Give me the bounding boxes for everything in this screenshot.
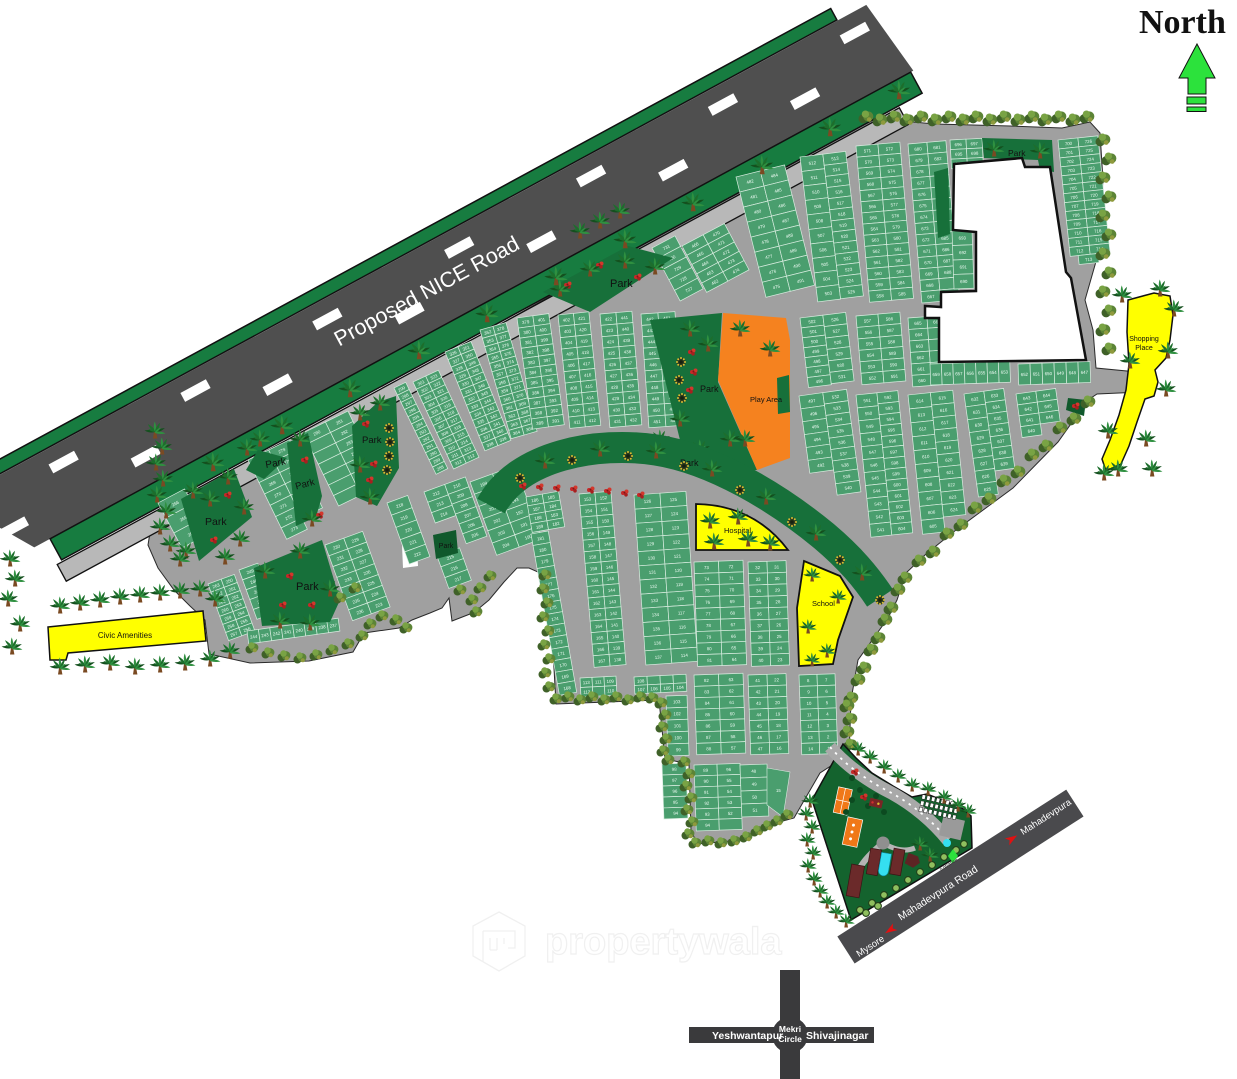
svg-text:705: 705 — [1069, 185, 1077, 191]
svg-text:581: 581 — [894, 246, 902, 252]
svg-text:148: 148 — [604, 541, 612, 547]
svg-text:612: 612 — [919, 426, 927, 432]
svg-text:431: 431 — [614, 419, 622, 425]
svg-text:585: 585 — [898, 291, 906, 297]
svg-text:663: 663 — [916, 343, 924, 349]
svg-text:52: 52 — [728, 811, 734, 816]
svg-text:570: 570 — [865, 159, 873, 165]
svg-text:609: 609 — [923, 468, 931, 474]
svg-text:624: 624 — [950, 507, 958, 513]
svg-text:145: 145 — [607, 576, 615, 582]
svg-text:523: 523 — [845, 267, 853, 273]
svg-text:529: 529 — [835, 351, 843, 357]
svg-text:152: 152 — [600, 495, 608, 501]
svg-text:89: 89 — [703, 768, 709, 773]
svg-text:127: 127 — [645, 513, 653, 519]
svg-text:146: 146 — [606, 564, 614, 570]
svg-text:607: 607 — [926, 496, 934, 502]
svg-text:414: 414 — [586, 395, 594, 401]
svg-text:94: 94 — [673, 811, 679, 816]
svg-text:446: 446 — [649, 362, 657, 368]
svg-text:613: 613 — [917, 412, 925, 418]
svg-text:520: 520 — [841, 233, 849, 239]
svg-text:139: 139 — [613, 645, 621, 651]
svg-text:673: 673 — [921, 226, 929, 232]
svg-text:674: 674 — [920, 214, 928, 220]
svg-text:704: 704 — [1068, 177, 1076, 183]
svg-text:600: 600 — [893, 482, 901, 488]
svg-text:396: 396 — [545, 367, 554, 373]
svg-text:573: 573 — [886, 157, 894, 163]
svg-text:151: 151 — [601, 507, 609, 513]
svg-text:653: 653 — [1001, 369, 1009, 374]
svg-text:160: 160 — [591, 577, 599, 583]
svg-text:657: 657 — [955, 371, 963, 376]
svg-text:51: 51 — [753, 808, 759, 813]
svg-text:425: 425 — [608, 350, 616, 356]
svg-text:420: 420 — [579, 327, 587, 333]
svg-text:405: 405 — [566, 351, 574, 357]
svg-text:676: 676 — [918, 192, 926, 198]
svg-text:Shivajinagar: Shivajinagar — [806, 1030, 868, 1042]
svg-text:655: 655 — [978, 370, 986, 375]
svg-text:63: 63 — [728, 677, 734, 682]
svg-text:450: 450 — [652, 407, 660, 413]
svg-text:695: 695 — [955, 151, 963, 156]
svg-text:621: 621 — [946, 469, 954, 475]
svg-text:77: 77 — [705, 611, 711, 616]
svg-text:33: 33 — [756, 577, 762, 582]
svg-text:596: 596 — [889, 438, 897, 444]
svg-text:615: 615 — [938, 395, 946, 401]
svg-text:702: 702 — [1066, 159, 1074, 165]
svg-text:408: 408 — [570, 385, 578, 391]
svg-text:701: 701 — [1065, 150, 1073, 156]
svg-text:164: 164 — [595, 624, 603, 630]
svg-text:72: 72 — [728, 564, 734, 569]
svg-text:530: 530 — [837, 362, 845, 368]
svg-text:512: 512 — [808, 160, 816, 166]
svg-text:90: 90 — [704, 779, 710, 784]
svg-text:541: 541 — [877, 527, 885, 533]
svg-text:157: 157 — [588, 543, 596, 549]
svg-text:500: 500 — [811, 339, 819, 345]
svg-text:404: 404 — [565, 340, 573, 346]
svg-text:38: 38 — [758, 635, 764, 640]
svg-text:113: 113 — [583, 680, 591, 685]
svg-text:54: 54 — [727, 789, 733, 794]
svg-text:Mekri: Mekri — [779, 1024, 801, 1034]
svg-text:605: 605 — [929, 523, 937, 529]
svg-text:35: 35 — [756, 600, 762, 605]
svg-text:510: 510 — [812, 189, 820, 195]
svg-text:659: 659 — [932, 372, 940, 377]
svg-text:564: 564 — [870, 226, 878, 232]
svg-text:582: 582 — [895, 258, 903, 264]
svg-text:Shopping: Shopping — [1129, 336, 1159, 343]
svg-text:50: 50 — [752, 795, 758, 800]
svg-text:592: 592 — [884, 394, 892, 400]
svg-text:652: 652 — [1021, 372, 1029, 377]
svg-text:678: 678 — [916, 169, 924, 175]
svg-text:100: 100 — [674, 735, 682, 740]
svg-text:721: 721 — [1089, 183, 1097, 189]
svg-text:Yeshwantapur: Yeshwantapur — [712, 1030, 783, 1042]
svg-text:437: 437 — [625, 360, 633, 366]
svg-text:527: 527 — [832, 328, 840, 334]
svg-text:122: 122 — [673, 539, 681, 545]
svg-text:150: 150 — [602, 518, 610, 524]
svg-text:163: 163 — [594, 612, 602, 618]
svg-text:531: 531 — [838, 374, 846, 380]
svg-text:12: 12 — [807, 724, 813, 729]
svg-text:528: 528 — [834, 339, 842, 345]
svg-text:515: 515 — [834, 178, 842, 184]
svg-text:508: 508 — [816, 218, 824, 224]
svg-text:681: 681 — [933, 145, 941, 151]
svg-text:444: 444 — [648, 339, 656, 345]
svg-text:708: 708 — [1072, 212, 1080, 218]
svg-text:586: 586 — [886, 316, 894, 322]
svg-text:98: 98 — [672, 767, 678, 772]
svg-text:614: 614 — [916, 398, 924, 404]
svg-text:403: 403 — [564, 328, 572, 334]
svg-text:504: 504 — [823, 276, 831, 282]
svg-text:577: 577 — [890, 202, 898, 208]
svg-text:86: 86 — [705, 723, 711, 728]
svg-text:103: 103 — [673, 699, 681, 704]
svg-text:664: 664 — [915, 332, 923, 338]
svg-text:623: 623 — [949, 494, 957, 500]
svg-text:91: 91 — [704, 790, 710, 795]
svg-text:162: 162 — [593, 600, 601, 606]
svg-text:53: 53 — [727, 800, 733, 805]
svg-text:Park: Park — [610, 278, 633, 290]
svg-text:118: 118 — [677, 596, 685, 602]
svg-text:667: 667 — [927, 294, 935, 300]
svg-text:505: 505 — [821, 261, 829, 267]
svg-text:619: 619 — [944, 445, 952, 451]
svg-text:415: 415 — [585, 384, 593, 390]
svg-text:114: 114 — [681, 653, 689, 659]
svg-text:123: 123 — [672, 525, 680, 531]
svg-text:416: 416 — [584, 372, 592, 378]
svg-text:Park: Park — [700, 384, 719, 394]
svg-text:427: 427 — [610, 373, 618, 379]
svg-text:616: 616 — [940, 407, 948, 413]
svg-text:111: 111 — [595, 679, 602, 684]
svg-text:682: 682 — [934, 156, 942, 162]
svg-text:81: 81 — [707, 658, 713, 663]
svg-text:102: 102 — [673, 711, 681, 716]
svg-text:518: 518 — [838, 211, 846, 217]
svg-text:412: 412 — [589, 418, 597, 424]
svg-text:506: 506 — [819, 247, 827, 253]
svg-text:608: 608 — [925, 482, 933, 488]
svg-text:117: 117 — [678, 610, 686, 616]
svg-text:561: 561 — [873, 260, 881, 266]
svg-text:41: 41 — [755, 678, 761, 683]
svg-text:159: 159 — [590, 566, 598, 572]
svg-text:80: 80 — [707, 646, 713, 651]
svg-text:24: 24 — [777, 646, 783, 651]
svg-text:Circle: Circle — [778, 1034, 802, 1044]
svg-text:82: 82 — [704, 678, 710, 683]
svg-text:588: 588 — [888, 339, 896, 345]
svg-text:553: 553 — [868, 364, 876, 370]
svg-text:598: 598 — [891, 460, 899, 466]
svg-text:92: 92 — [704, 801, 710, 806]
svg-text:435: 435 — [627, 383, 635, 389]
svg-text:552: 552 — [869, 375, 877, 381]
svg-text:661: 661 — [917, 366, 925, 372]
svg-text:447: 447 — [650, 373, 658, 379]
svg-text:650: 650 — [1045, 371, 1053, 376]
svg-text:147: 147 — [605, 553, 613, 559]
svg-text:55: 55 — [727, 778, 733, 783]
svg-text:57: 57 — [731, 745, 737, 750]
svg-text:651: 651 — [1033, 371, 1041, 376]
svg-text:713: 713 — [1085, 257, 1093, 263]
svg-text:421: 421 — [578, 316, 586, 322]
svg-text:165: 165 — [596, 635, 604, 641]
svg-text:62: 62 — [729, 688, 735, 693]
svg-text:440: 440 — [622, 326, 630, 332]
svg-text:525: 525 — [847, 289, 855, 295]
svg-text:524: 524 — [846, 278, 854, 284]
svg-text:School: School — [812, 599, 835, 608]
svg-text:384: 384 — [529, 370, 538, 376]
svg-text:597: 597 — [890, 449, 898, 455]
svg-text:391: 391 — [552, 418, 561, 424]
svg-text:418: 418 — [581, 350, 589, 356]
svg-text:601: 601 — [894, 493, 902, 499]
svg-text:725: 725 — [1085, 148, 1093, 154]
svg-text:670: 670 — [924, 260, 932, 266]
svg-text:108: 108 — [637, 678, 645, 683]
svg-text:23: 23 — [777, 657, 783, 662]
svg-text:22: 22 — [774, 677, 780, 682]
svg-text:451: 451 — [653, 419, 661, 425]
svg-text:719: 719 — [1091, 201, 1099, 207]
svg-text:17: 17 — [776, 734, 782, 739]
svg-text:517: 517 — [836, 200, 844, 206]
svg-text:417: 417 — [583, 361, 591, 367]
svg-text:10: 10 — [806, 701, 812, 706]
svg-text:509: 509 — [814, 204, 822, 210]
svg-text:29: 29 — [775, 588, 781, 593]
svg-text:95: 95 — [673, 800, 679, 805]
svg-text:143: 143 — [609, 599, 617, 605]
svg-text:589: 589 — [889, 351, 897, 357]
svg-text:665: 665 — [914, 320, 922, 326]
svg-text:542: 542 — [875, 514, 883, 520]
svg-text:69: 69 — [730, 599, 736, 604]
svg-text:595: 595 — [887, 427, 895, 433]
svg-text:501: 501 — [809, 329, 817, 335]
svg-text:11: 11 — [807, 712, 812, 717]
svg-text:104: 104 — [676, 685, 684, 690]
svg-text:379: 379 — [522, 319, 531, 325]
svg-text:34: 34 — [756, 588, 762, 593]
svg-text:76: 76 — [705, 600, 711, 605]
svg-text:132: 132 — [650, 584, 658, 590]
svg-text:575: 575 — [888, 180, 896, 186]
svg-text:410: 410 — [572, 408, 580, 414]
svg-text:726: 726 — [1084, 139, 1092, 145]
svg-text:514: 514 — [832, 167, 840, 173]
svg-text:550: 550 — [865, 411, 873, 417]
svg-text:136: 136 — [654, 640, 662, 646]
svg-text:679: 679 — [915, 158, 923, 164]
svg-text:680: 680 — [914, 146, 922, 152]
svg-text:59: 59 — [730, 723, 736, 728]
svg-text:37: 37 — [757, 623, 763, 628]
svg-text:593: 593 — [885, 405, 893, 411]
svg-text:20: 20 — [775, 700, 781, 705]
svg-text:710: 710 — [1074, 230, 1082, 236]
svg-text:46: 46 — [757, 735, 763, 740]
svg-text:580: 580 — [893, 235, 901, 241]
svg-text:649: 649 — [1057, 371, 1065, 376]
svg-text:138: 138 — [614, 657, 622, 663]
svg-text:432: 432 — [629, 417, 637, 423]
svg-text:44: 44 — [756, 712, 762, 717]
svg-text:617: 617 — [941, 420, 949, 426]
svg-text:158: 158 — [589, 554, 597, 560]
svg-text:402: 402 — [562, 317, 570, 323]
svg-text:141: 141 — [611, 622, 619, 628]
svg-text:590: 590 — [890, 362, 898, 368]
svg-text:32: 32 — [755, 565, 761, 570]
svg-text:85: 85 — [705, 712, 711, 717]
svg-text:576: 576 — [889, 191, 897, 197]
svg-text:78: 78 — [706, 623, 712, 628]
svg-text:99: 99 — [676, 747, 682, 752]
svg-text:672: 672 — [922, 237, 930, 243]
svg-text:Park: Park — [439, 543, 454, 550]
svg-text:571: 571 — [864, 148, 872, 154]
svg-text:569: 569 — [866, 170, 874, 176]
svg-text:697: 697 — [970, 141, 978, 146]
svg-text:611: 611 — [921, 440, 929, 446]
svg-text:428: 428 — [611, 384, 619, 390]
svg-text:445: 445 — [648, 351, 656, 357]
svg-text:563: 563 — [871, 237, 879, 243]
svg-text:167: 167 — [598, 658, 606, 664]
svg-text:Park: Park — [362, 435, 382, 446]
svg-text:125: 125 — [670, 497, 678, 503]
svg-text:64: 64 — [732, 657, 738, 662]
svg-text:166: 166 — [597, 647, 605, 653]
svg-text:94: 94 — [705, 823, 711, 828]
svg-text:19: 19 — [775, 711, 781, 716]
svg-text:572: 572 — [886, 146, 894, 152]
svg-text:583: 583 — [896, 269, 904, 275]
svg-text:692: 692 — [959, 250, 967, 255]
svg-text:559: 559 — [875, 282, 883, 288]
svg-text:25: 25 — [777, 634, 783, 639]
svg-text:71: 71 — [729, 576, 735, 581]
svg-text:27: 27 — [776, 611, 782, 616]
svg-text:690: 690 — [960, 279, 968, 284]
svg-text:134: 134 — [652, 612, 660, 618]
svg-text:567: 567 — [868, 193, 876, 199]
svg-text:96: 96 — [726, 767, 732, 772]
svg-text:407: 407 — [568, 374, 576, 380]
svg-text:438: 438 — [624, 349, 632, 355]
svg-text:Park: Park — [296, 581, 319, 593]
svg-text:544: 544 — [873, 488, 881, 494]
svg-text:149: 149 — [603, 530, 611, 536]
svg-text:131: 131 — [649, 569, 657, 575]
svg-text:106: 106 — [650, 686, 658, 691]
svg-text:137: 137 — [655, 654, 663, 660]
svg-text:647: 647 — [1081, 370, 1089, 375]
svg-text:707: 707 — [1071, 203, 1079, 209]
svg-text:79: 79 — [706, 635, 712, 640]
svg-text:560: 560 — [874, 271, 882, 277]
svg-text:30: 30 — [775, 576, 781, 581]
svg-text:413: 413 — [587, 406, 595, 412]
svg-text:18: 18 — [776, 723, 782, 728]
svg-text:548: 548 — [867, 436, 875, 442]
svg-text:519: 519 — [839, 222, 847, 228]
svg-text:126: 126 — [644, 499, 652, 505]
svg-text:696: 696 — [954, 142, 962, 147]
svg-text:84: 84 — [705, 701, 711, 706]
svg-text:107: 107 — [637, 687, 645, 692]
svg-text:36: 36 — [757, 611, 763, 616]
svg-text:671: 671 — [923, 248, 931, 254]
svg-text:557: 557 — [864, 318, 872, 324]
svg-text:499: 499 — [812, 349, 820, 355]
svg-text:21: 21 — [775, 689, 781, 694]
svg-text:620: 620 — [945, 457, 953, 463]
svg-text:555: 555 — [866, 341, 874, 347]
svg-text:115: 115 — [680, 638, 688, 644]
svg-text:433: 433 — [629, 406, 637, 412]
svg-text:133: 133 — [651, 598, 659, 604]
svg-text:587: 587 — [887, 328, 895, 334]
svg-text:498: 498 — [813, 358, 821, 364]
svg-text:409: 409 — [571, 396, 579, 402]
svg-text:521: 521 — [842, 244, 850, 250]
svg-text:97: 97 — [672, 778, 678, 783]
svg-text:594: 594 — [886, 416, 894, 422]
svg-text:49: 49 — [752, 782, 758, 787]
svg-text:66: 66 — [731, 634, 737, 639]
svg-text:656: 656 — [967, 371, 975, 376]
svg-text:14: 14 — [808, 746, 814, 751]
svg-text:60: 60 — [730, 711, 736, 716]
svg-text:660: 660 — [918, 378, 926, 384]
svg-text:406: 406 — [567, 362, 575, 368]
svg-text:93: 93 — [705, 812, 711, 817]
svg-text:711: 711 — [1075, 239, 1083, 245]
svg-text:698: 698 — [971, 151, 979, 156]
svg-text:720: 720 — [1090, 192, 1098, 198]
svg-text:497: 497 — [814, 368, 822, 374]
svg-text:73: 73 — [704, 565, 710, 570]
svg-text:441: 441 — [621, 315, 629, 321]
svg-text:423: 423 — [606, 328, 614, 334]
svg-text:703: 703 — [1067, 168, 1075, 174]
svg-text:124: 124 — [671, 511, 679, 517]
svg-text:706: 706 — [1070, 194, 1078, 200]
svg-text:419: 419 — [580, 338, 588, 344]
svg-text:40: 40 — [758, 658, 764, 663]
